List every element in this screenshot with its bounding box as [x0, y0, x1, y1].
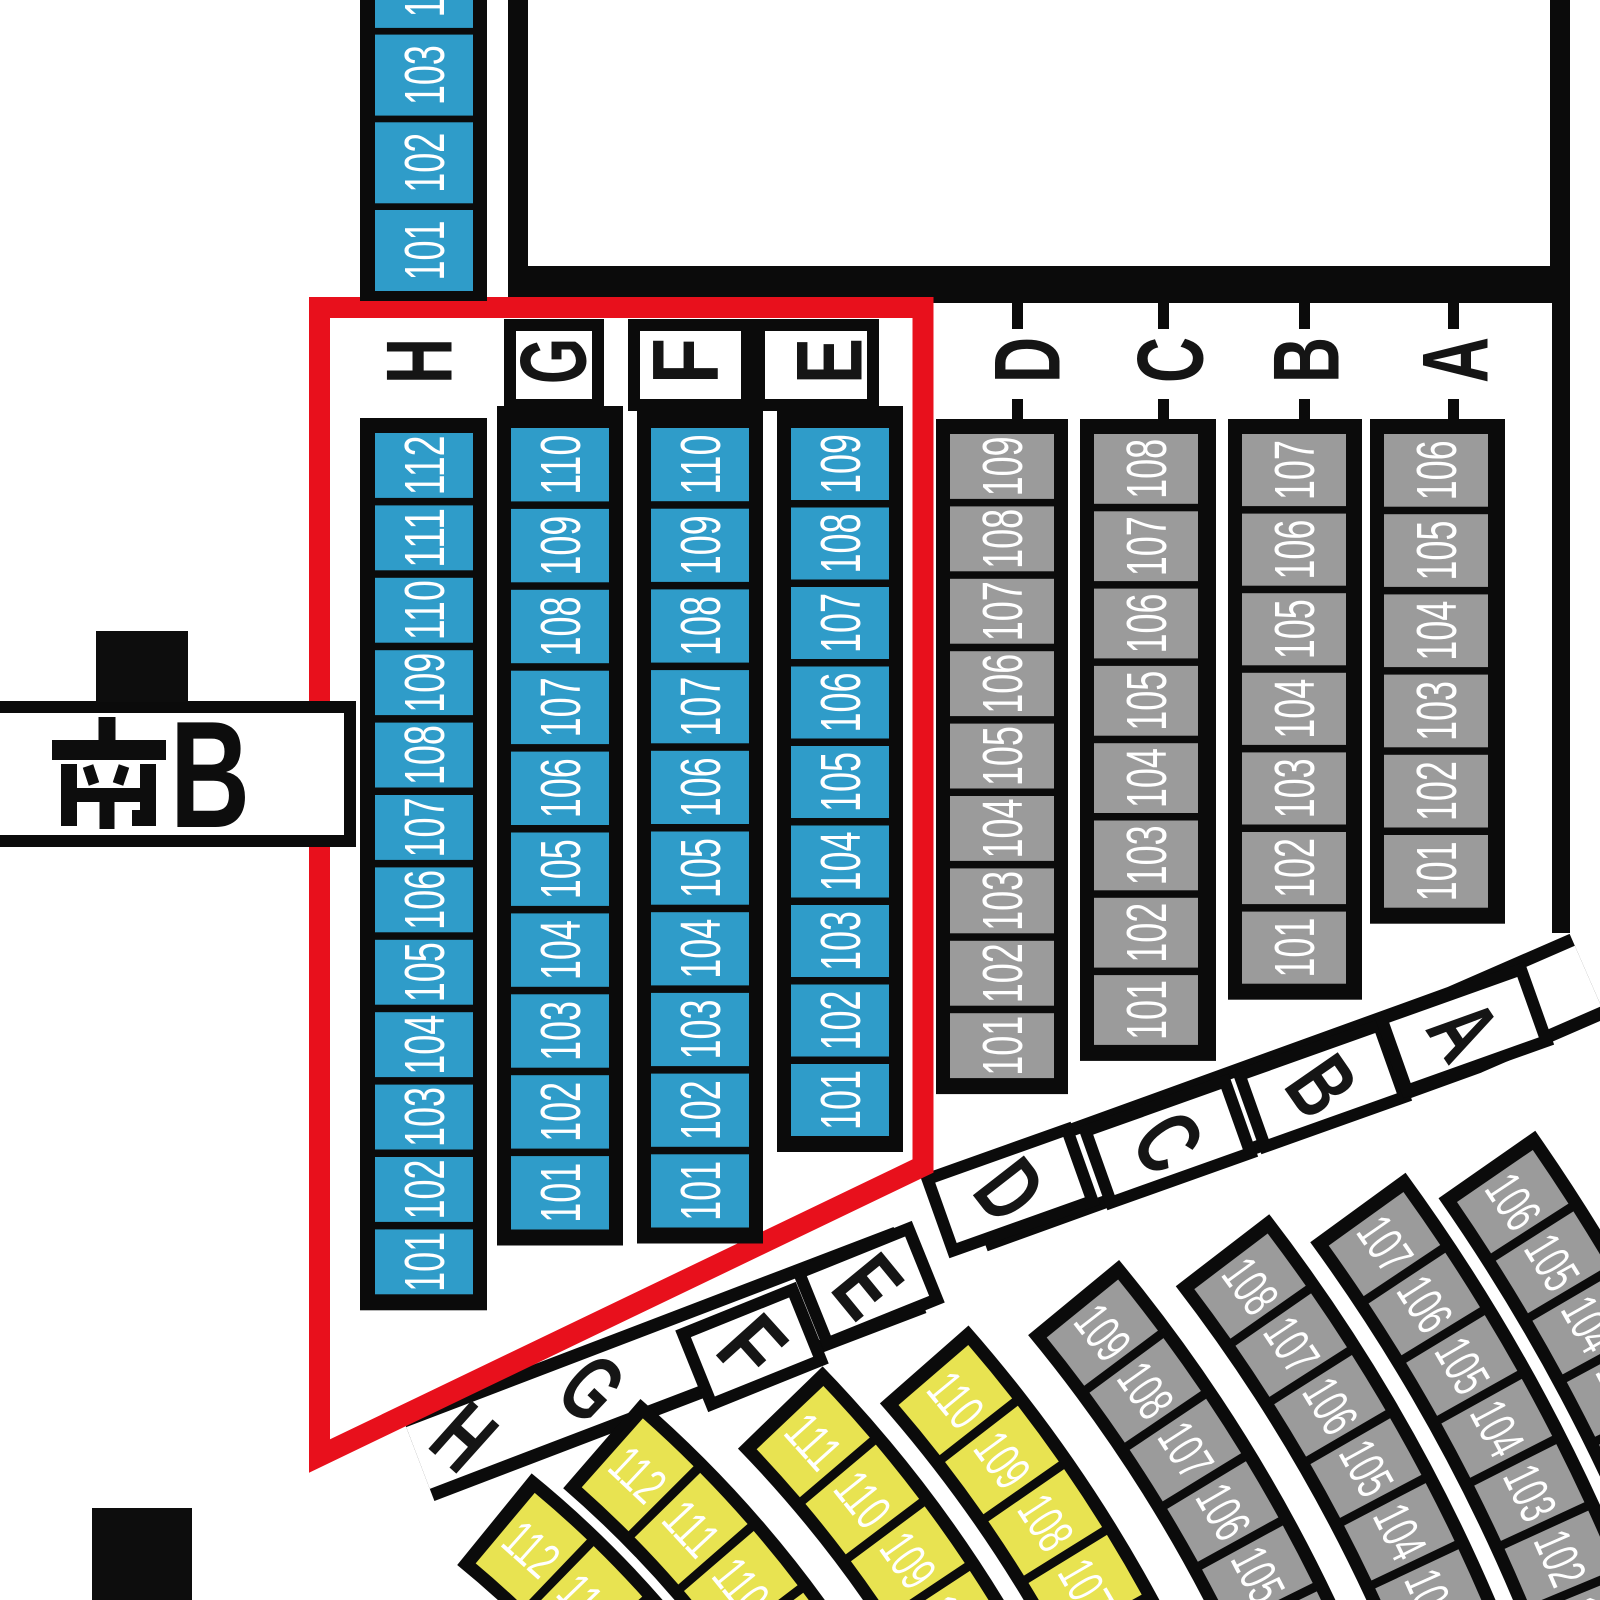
svg-text:104: 104 [1263, 679, 1327, 739]
svg-text:103: 103 [1115, 825, 1179, 885]
svg-text:102: 102 [529, 1082, 593, 1142]
svg-text:C: C [1118, 337, 1223, 383]
svg-text:105: 105 [1405, 521, 1469, 581]
svg-text:108: 108 [1115, 439, 1179, 499]
svg-text:108: 108 [971, 509, 1035, 569]
svg-text:103: 103 [529, 1001, 593, 1061]
svg-text:104: 104 [393, 1015, 457, 1075]
svg-text:109: 109 [393, 653, 457, 713]
svg-text:104: 104 [1405, 601, 1469, 661]
svg-text:111: 111 [393, 508, 457, 568]
svg-text:107: 107 [529, 677, 593, 737]
svg-text:105: 105 [1115, 671, 1179, 731]
svg-text:101: 101 [971, 1016, 1035, 1076]
svg-text:106: 106 [529, 758, 593, 818]
svg-text:107: 107 [393, 798, 457, 858]
svg-text:106: 106 [669, 757, 733, 817]
svg-text:108: 108 [393, 725, 457, 785]
svg-text:D: D [975, 337, 1080, 383]
svg-text:106: 106 [1405, 440, 1469, 500]
svg-text:102: 102 [1115, 903, 1179, 963]
svg-text:105: 105 [809, 752, 873, 812]
svg-text:102: 102 [1405, 761, 1469, 821]
svg-text:H: H [367, 338, 472, 384]
svg-text:F: F [633, 338, 738, 384]
svg-text:106: 106 [971, 654, 1035, 714]
svg-text:101: 101 [393, 1232, 457, 1292]
svg-text:101: 101 [393, 221, 457, 281]
svg-text:108: 108 [529, 597, 593, 657]
svg-text:105: 105 [1263, 599, 1327, 659]
svg-text:109: 109 [669, 515, 733, 575]
svg-text:112: 112 [393, 435, 457, 495]
svg-text:104: 104 [669, 919, 733, 979]
svg-text:101: 101 [1263, 918, 1327, 978]
svg-text:106: 106 [1263, 520, 1327, 580]
svg-text:103: 103 [393, 45, 457, 105]
svg-text:B: B [170, 690, 250, 860]
svg-text:109: 109 [529, 516, 593, 576]
svg-text:102: 102 [669, 1080, 733, 1140]
svg-text:102: 102 [809, 991, 873, 1051]
svg-text:104: 104 [393, 0, 457, 17]
svg-text:104: 104 [971, 799, 1035, 859]
svg-text:103: 103 [1263, 758, 1327, 818]
svg-text:101: 101 [669, 1161, 733, 1221]
svg-text:E: E [777, 338, 882, 384]
svg-text:105: 105 [669, 838, 733, 898]
svg-text:B: B [1254, 337, 1359, 383]
svg-text:A: A [1403, 337, 1508, 383]
svg-text:101: 101 [1405, 841, 1469, 901]
svg-text:G: G [501, 338, 606, 384]
svg-text:106: 106 [809, 673, 873, 733]
svg-text:101: 101 [809, 1070, 873, 1130]
svg-text:103: 103 [809, 911, 873, 971]
svg-text:102: 102 [971, 943, 1035, 1003]
svg-text:104: 104 [1115, 748, 1179, 808]
svg-text:105: 105 [529, 839, 593, 899]
svg-text:110: 110 [393, 580, 457, 640]
svg-text:107: 107 [1263, 440, 1327, 500]
svg-text:103: 103 [1405, 681, 1469, 741]
svg-text:104: 104 [809, 832, 873, 892]
svg-text:108: 108 [809, 514, 873, 574]
svg-text:110: 110 [669, 435, 733, 495]
svg-text:102: 102 [393, 1160, 457, 1220]
svg-text:107: 107 [669, 677, 733, 737]
svg-text:107: 107 [971, 581, 1035, 641]
svg-text:106: 106 [1115, 594, 1179, 654]
svg-text:105: 105 [393, 942, 457, 1002]
svg-text:107: 107 [809, 593, 873, 653]
svg-text:104: 104 [529, 920, 593, 980]
svg-text:102: 102 [393, 133, 457, 193]
svg-text:110: 110 [529, 435, 593, 495]
svg-text:109: 109 [809, 434, 873, 494]
svg-text:109: 109 [971, 436, 1035, 496]
svg-text:107: 107 [1115, 516, 1179, 576]
svg-text:101: 101 [1115, 980, 1179, 1040]
svg-text:103: 103 [971, 871, 1035, 931]
svg-text:103: 103 [669, 1000, 733, 1060]
svg-text:102: 102 [1263, 838, 1327, 898]
svg-text:103: 103 [393, 1087, 457, 1147]
svg-text:108: 108 [669, 596, 733, 656]
svg-text:106: 106 [393, 870, 457, 930]
svg-text:101: 101 [529, 1163, 593, 1223]
svg-text:105: 105 [971, 726, 1035, 786]
